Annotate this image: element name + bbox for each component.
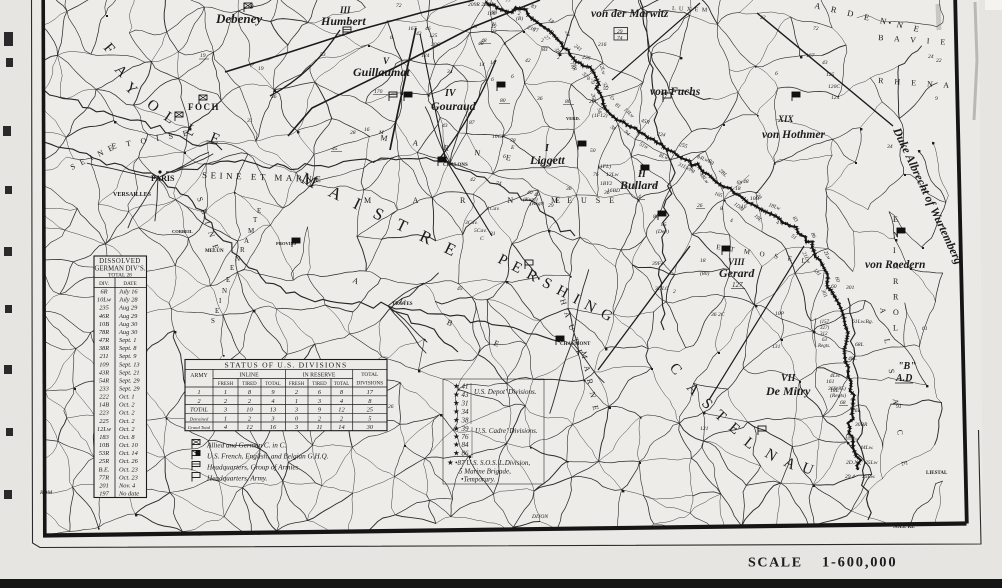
svg-text:Gouraud: Gouraud: [431, 99, 477, 113]
svg-text:U.S. Depot’ Divisions.: U.S. Depot’ Divisions.: [474, 388, 537, 396]
svg-text:91: 91: [896, 404, 902, 410]
svg-text:FRESH: FRESH: [289, 382, 305, 387]
svg-text:5Cav.: 5Cav.: [474, 228, 487, 234]
svg-text:50: 50: [590, 148, 596, 154]
svg-text:197: 197: [99, 491, 109, 498]
svg-text:Headquarters, Group of Armies.: Headquarters, Group of Armies.: [206, 464, 300, 472]
svg-text:87: 87: [469, 120, 475, 126]
svg-text:16: 16: [270, 424, 277, 431]
svg-text:125: 125: [826, 72, 835, 78]
svg-text:TIRED: TIRED: [242, 382, 257, 387]
svg-text:36 2C: 36 2C: [710, 312, 725, 318]
svg-text:39: 39: [461, 425, 470, 433]
svg-text:61: 61: [922, 326, 928, 332]
svg-text:July 28: July 28: [119, 297, 138, 304]
svg-text:14: 14: [490, 60, 496, 66]
svg-text:209R 2BR: 209R 2BR: [468, 2, 491, 8]
svg-text:Aug 29: Aug 29: [118, 305, 138, 312]
svg-text:VII: VII: [781, 373, 797, 384]
svg-text:R: R: [240, 246, 245, 254]
svg-text:CHALONS: CHALONS: [443, 163, 468, 168]
svg-text:10: 10: [246, 407, 253, 414]
svg-text:25Lw.: 25Lw.: [862, 474, 875, 480]
svg-text:1-600,000: 1-600,000: [822, 555, 897, 571]
svg-text:3: 3: [294, 407, 298, 414]
svg-text:39Fc.: 39Fc.: [651, 261, 665, 267]
svg-text:INLINE: INLINE: [239, 373, 259, 379]
svg-text:80: 80: [248, 4, 254, 10]
svg-text:Sept. 29: Sept. 29: [119, 386, 140, 393]
svg-text:38R: 38R: [98, 345, 109, 352]
svg-text:12Lw: 12Lw: [97, 426, 112, 433]
svg-text:14B: 14B: [99, 402, 109, 409]
svg-text:M: M: [378, 130, 384, 136]
svg-text:124: 124: [831, 95, 840, 101]
svg-text:Oct. 14: Oct. 14: [119, 450, 139, 457]
svg-text:N: N: [235, 255, 240, 263]
svg-text:301: 301: [845, 285, 855, 291]
svg-text:U.S. Cadre’ Divisions.: U.S. Cadre’ Divisions.: [475, 427, 538, 435]
svg-text:R: R: [893, 277, 899, 286]
svg-text:18: 18: [735, 186, 741, 192]
svg-text:2: 2: [197, 398, 200, 405]
svg-text:Oct. 26: Oct. 26: [119, 458, 139, 465]
svg-text:XIX: XIX: [777, 114, 795, 124]
svg-text:1Cav.: 1Cav.: [487, 206, 500, 212]
svg-text:De Mitry: De Mitry: [765, 384, 811, 398]
svg-text:LIESTAL: LIESTAL: [926, 471, 948, 476]
svg-text:12Lw: 12Lw: [606, 172, 619, 178]
svg-text:124: 124: [421, 53, 430, 59]
svg-text:S: S: [211, 317, 215, 325]
svg-text:3DLC: 3DLC: [654, 286, 669, 292]
svg-text:Humbert: Humbert: [320, 14, 366, 28]
svg-text:10B: 10B: [99, 442, 109, 449]
svg-text:68: 68: [840, 400, 846, 406]
svg-text:10P: 10P: [775, 311, 785, 317]
svg-text:July 16: July 16: [119, 289, 138, 296]
svg-text:43: 43: [822, 60, 828, 66]
svg-text:18: 18: [700, 258, 706, 264]
svg-text:1: 1: [295, 398, 298, 405]
svg-text:211: 211: [99, 353, 108, 360]
svg-text:34: 34: [446, 69, 453, 75]
svg-text:•Temporary.: •Temporary.: [461, 476, 496, 484]
svg-text:von der Marwitz: von der Marwitz: [591, 8, 669, 20]
svg-text:78R: 78R: [99, 329, 109, 336]
svg-text:225: 225: [99, 418, 109, 425]
svg-text:36: 36: [536, 96, 543, 102]
svg-text:•87 U.S. S.O.S. L.Division,: •87 U.S. S.O.S. L.Division,: [455, 459, 530, 467]
svg-text:3: 3: [294, 424, 298, 431]
svg-text:63: 63: [822, 338, 828, 343]
svg-text:44Lw.: 44Lw.: [860, 445, 873, 451]
svg-text:121: 121: [700, 426, 709, 432]
svg-text:125: 125: [429, 33, 438, 39]
svg-text:19: 19: [200, 53, 206, 59]
svg-text:Oct. 23: Oct. 23: [119, 466, 138, 473]
svg-text:DISSOLVED: DISSOLVED: [99, 258, 141, 265]
svg-text:Headquarters, Army.: Headquarters, Army.: [206, 475, 268, 483]
svg-text:4: 4: [638, 194, 641, 200]
svg-text:77: 77: [505, 0, 511, 4]
svg-text:I: I: [893, 246, 896, 255]
svg-text:Sept. 29: Sept. 29: [119, 377, 140, 384]
svg-text:9: 9: [935, 96, 938, 102]
svg-text:Aug 30: Aug 30: [118, 321, 138, 328]
svg-text:E: E: [257, 207, 261, 215]
svg-text:Oct. 10: Oct. 10: [119, 442, 139, 449]
svg-text:74: 74: [496, 181, 502, 187]
svg-text:R: R: [893, 293, 899, 302]
svg-text:22: 22: [760, 15, 766, 21]
svg-text:3: 3: [223, 407, 227, 414]
svg-text:PARIS: PARIS: [151, 174, 175, 183]
svg-text:(Kupl): (Kupl): [523, 196, 538, 203]
svg-text:1: 1: [224, 415, 227, 422]
svg-text:29.4: 29.4: [845, 474, 855, 480]
svg-text:68L: 68L: [855, 342, 864, 348]
svg-text:17: 17: [367, 389, 374, 396]
svg-text:20C: 20C: [431, 42, 441, 48]
svg-text:222: 222: [99, 394, 109, 401]
svg-text:6: 6: [775, 71, 778, 77]
svg-text:5 Marine Brigade,: 5 Marine Brigade,: [459, 468, 511, 476]
svg-text:36: 36: [270, 94, 277, 100]
svg-text:Aug 29: Aug 29: [118, 313, 138, 320]
svg-text:L: L: [893, 324, 898, 333]
svg-text:GERMAN DIV’S.: GERMAN DIV’S.: [95, 266, 146, 273]
svg-text:47R: 47R: [99, 337, 109, 344]
svg-text:26L: 26L: [852, 408, 861, 414]
svg-text:80: 80: [565, 99, 571, 105]
svg-text:Grand Total: Grand Total: [188, 425, 211, 430]
svg-text:83: 83: [542, 47, 548, 53]
svg-text:127: 127: [732, 281, 743, 289]
svg-text:28: 28: [350, 130, 356, 136]
svg-text:34: 34: [886, 144, 893, 150]
svg-text:25Lw: 25Lw: [865, 460, 878, 466]
svg-text:6: 6: [503, 154, 506, 160]
svg-text:46R: 46R: [99, 313, 109, 320]
svg-text:TOTAL: TOTAL: [334, 382, 350, 387]
svg-text:Sept. 1: Sept. 1: [119, 337, 136, 344]
svg-text:O: O: [893, 308, 899, 317]
svg-text:Detrained: Detrained: [189, 416, 209, 421]
svg-text:22: 22: [491, 24, 497, 30]
svg-text:24: 24: [928, 54, 934, 60]
svg-text:43R: 43R: [99, 369, 109, 376]
svg-text:30: 30: [366, 424, 374, 431]
svg-text:Oct. 23: Oct. 23: [119, 474, 138, 481]
svg-text:10CP: 10CP: [492, 134, 505, 140]
svg-text:131: 131: [772, 344, 781, 350]
svg-text:21: 21: [472, 24, 478, 30]
svg-text:235: 235: [99, 305, 109, 312]
svg-text:Oct. 2: Oct. 2: [119, 426, 135, 433]
svg-text:6: 6: [511, 74, 514, 80]
svg-text:14: 14: [479, 62, 485, 68]
svg-text:CORBEIL: CORBEIL: [172, 229, 193, 234]
svg-text:72: 72: [813, 26, 819, 32]
svg-text:(157: (157: [820, 320, 830, 325]
svg-text:312: 312: [820, 332, 828, 337]
svg-text:TOTAL: TOTAL: [265, 382, 281, 387]
svg-text:74: 74: [617, 35, 623, 42]
svg-text:369(85): 369(85): [827, 385, 846, 392]
svg-text:2: 2: [673, 289, 676, 295]
svg-text:TIRED: TIRED: [312, 382, 327, 387]
svg-text:U.S. French, English, and Belg: U.S. French, English, and Belgian G.H.Q.: [207, 453, 329, 461]
svg-text:FOCH: FOCH: [188, 102, 220, 112]
svg-text:85: 85: [661, 222, 667, 228]
svg-text:76: 76: [462, 433, 470, 441]
svg-text:★: ★: [453, 449, 460, 458]
svg-text:N: N: [222, 287, 227, 295]
svg-text:45: 45: [332, 146, 338, 152]
svg-text:Oct. 2: Oct. 2: [119, 402, 135, 409]
svg-text:Sept. 21: Sept. 21: [119, 369, 140, 376]
svg-text:10B: 10B: [99, 321, 109, 328]
svg-text:"B": "B": [898, 361, 916, 372]
svg-text:38: 38: [461, 417, 470, 425]
svg-text:3: 3: [317, 398, 321, 405]
svg-text:VERSAILLES: VERSAILLES: [113, 192, 152, 198]
svg-text:Sept. 9: Sept. 9: [119, 353, 137, 360]
svg-text:5: 5: [368, 415, 371, 422]
svg-text:80: 80: [500, 98, 506, 104]
svg-text:Aug 30: Aug 30: [118, 329, 138, 336]
svg-text:36: 36: [565, 186, 572, 192]
svg-text:170: 170: [374, 89, 383, 95]
svg-text:216: 216: [598, 42, 607, 48]
svg-text:IV: IV: [444, 88, 457, 99]
svg-text:(Dep): (Dep): [656, 228, 669, 235]
svg-text:60: 60: [831, 284, 837, 290]
svg-text:TROYES: TROYES: [392, 302, 413, 307]
svg-text:16: 16: [364, 127, 370, 133]
svg-text:3Cav.: 3Cav.: [464, 220, 478, 226]
svg-text:53: 53: [320, 52, 326, 58]
svg-text:Regts.: Regts.: [817, 344, 830, 349]
svg-text:Guillaumat: Guillaumat: [353, 65, 410, 79]
svg-text:Oct. 2: Oct. 2: [119, 418, 135, 425]
svg-text:13: 13: [270, 407, 276, 414]
svg-text:TOTAL: TOTAL: [190, 407, 209, 414]
svg-text:Debeney: Debeney: [215, 11, 262, 26]
svg-text:(Regts): (Regts): [830, 392, 846, 399]
svg-text:ARMY: ARMY: [190, 373, 208, 379]
svg-text:Sept. 13: Sept. 13: [119, 361, 140, 368]
svg-text:167: 167: [806, 53, 815, 59]
svg-text:78: 78: [510, 138, 516, 144]
svg-text:A.D: A.D: [895, 373, 912, 384]
svg-text:46: 46: [425, 26, 431, 32]
svg-text:M E U S E: M E U S E: [551, 196, 618, 205]
svg-text:183: 183: [99, 434, 109, 441]
svg-text:109: 109: [99, 361, 109, 368]
svg-text:12: 12: [246, 424, 253, 431]
svg-text:Oct. 8: Oct. 8: [119, 434, 135, 441]
svg-text:11: 11: [317, 424, 323, 431]
svg-text:1: 1: [197, 389, 200, 396]
svg-text:45: 45: [457, 286, 463, 292]
svg-text:29: 29: [548, 203, 554, 209]
svg-text:No date: No date: [118, 491, 139, 498]
svg-text:233: 233: [99, 386, 109, 393]
svg-text:39: 39: [651, 183, 658, 189]
svg-text:E: E: [893, 215, 898, 224]
svg-text:STATUS OF U.S. DIVISIONS: STATUS OF U.S. DIVISIONS: [225, 361, 348, 370]
svg-text:42: 42: [470, 177, 476, 183]
svg-text:8: 8: [720, 206, 723, 212]
svg-text:M: M: [248, 227, 255, 235]
svg-text:E: E: [230, 264, 234, 272]
svg-text:6R: 6R: [100, 289, 107, 296]
svg-text:26: 26: [697, 203, 703, 209]
svg-text:von Fuchs: von Fuchs: [650, 86, 701, 98]
svg-text:25: 25: [367, 407, 373, 414]
svg-text:61Lw.Bg.: 61Lw.Bg.: [852, 319, 873, 325]
svg-text:25R: 25R: [99, 458, 109, 465]
svg-text:41: 41: [462, 383, 469, 391]
svg-text:von Hothmer: von Hothmer: [762, 129, 825, 141]
svg-text:A: A: [244, 237, 249, 245]
svg-text:C: C: [480, 236, 484, 242]
svg-text:10Lw: 10Lw: [97, 297, 112, 304]
svg-text:B.E.: B.E.: [98, 466, 109, 473]
svg-text:19: 19: [258, 66, 264, 72]
svg-text:48L: 48L: [848, 356, 857, 362]
svg-text:DIJON: DIJON: [531, 514, 548, 520]
svg-text:120C: 120C: [828, 84, 840, 90]
svg-text:E: E: [226, 276, 230, 284]
svg-text:40: 40: [527, 190, 533, 196]
svg-text:53R: 53R: [99, 450, 109, 457]
svg-text:DIVISIONS: DIVISIONS: [356, 381, 383, 387]
svg-text:SCALE: SCALE: [748, 556, 803, 571]
svg-text:54R: 54R: [99, 377, 109, 384]
svg-text:14: 14: [338, 424, 345, 431]
svg-text:43: 43: [462, 391, 470, 399]
svg-text:4: 4: [730, 218, 733, 224]
svg-text:201: 201: [99, 482, 109, 489]
svg-text:12: 12: [338, 407, 345, 414]
svg-text:72: 72: [396, 3, 402, 9]
svg-text:1: 1: [224, 389, 227, 396]
svg-text:31: 31: [246, 118, 253, 124]
svg-text:84: 84: [462, 441, 470, 449]
svg-text:E: E: [510, 145, 515, 151]
svg-text:von Roedern: von Roedern: [865, 259, 925, 271]
svg-text:79: 79: [589, 78, 595, 84]
svg-text:1BY2: 1BY2: [600, 181, 612, 187]
svg-text:Allied and German C. in C.: Allied and German C. in C.: [206, 442, 286, 450]
svg-text:86: 86: [462, 450, 470, 458]
svg-text:Liggett: Liggett: [529, 153, 565, 167]
svg-text:161: 161: [826, 379, 835, 385]
svg-text:DIV.: DIV.: [99, 281, 109, 287]
svg-text:77R: 77R: [99, 474, 109, 481]
svg-text:MELUN: MELUN: [205, 249, 224, 254]
svg-text:3: 3: [270, 415, 274, 422]
svg-text:31: 31: [461, 400, 469, 408]
svg-text:327): 327): [820, 326, 830, 331]
svg-text:CHAUMONT: CHAUMONT: [560, 342, 591, 347]
svg-text:42: 42: [525, 58, 531, 64]
svg-text:2D.N: 2D.N: [846, 460, 858, 466]
svg-text:76: 76: [593, 172, 599, 178]
svg-text:DATE: DATE: [123, 281, 136, 287]
svg-text:223: 223: [99, 410, 109, 417]
svg-text:IN RESERVE: IN RESERVE: [303, 373, 336, 379]
svg-text:34: 34: [461, 408, 470, 416]
svg-text:T: T: [253, 216, 258, 224]
svg-text:(1FL): (1FL): [598, 163, 611, 170]
svg-text:26: 26: [388, 404, 394, 410]
svg-text:6: 6: [491, 77, 494, 83]
svg-text:29: 29: [617, 29, 623, 35]
svg-text:48: 48: [481, 38, 487, 44]
svg-text:Nov. 4: Nov. 4: [118, 482, 136, 489]
svg-text:30BR: 30BR: [854, 422, 868, 428]
svg-text:43: 43: [442, 123, 448, 129]
svg-text:Sept. 8: Sept. 8: [119, 345, 137, 352]
svg-text:48: 48: [743, 179, 749, 185]
svg-text:VERD.: VERD.: [566, 116, 580, 121]
svg-text:43: 43: [416, 31, 422, 37]
svg-text:31: 31: [489, 231, 496, 237]
svg-text:Oct. 1: Oct. 1: [119, 394, 135, 401]
svg-text:6: 6: [390, 35, 393, 41]
svg-text:Gerard: Gerard: [719, 266, 755, 280]
svg-text:TOTAL: TOTAL: [361, 372, 378, 378]
svg-text:★: ★: [447, 458, 454, 467]
svg-text:FRESH: FRESH: [218, 382, 234, 387]
svg-text:(80): (80): [700, 270, 709, 277]
svg-text:TOTAL 28: TOTAL 28: [108, 273, 132, 279]
svg-text:22: 22: [936, 58, 942, 64]
svg-text:E: E: [215, 307, 219, 315]
svg-text:16BD: 16BD: [607, 188, 620, 194]
svg-text:88: 88: [653, 214, 659, 220]
svg-text:Oct. 2: Oct. 2: [119, 410, 135, 417]
